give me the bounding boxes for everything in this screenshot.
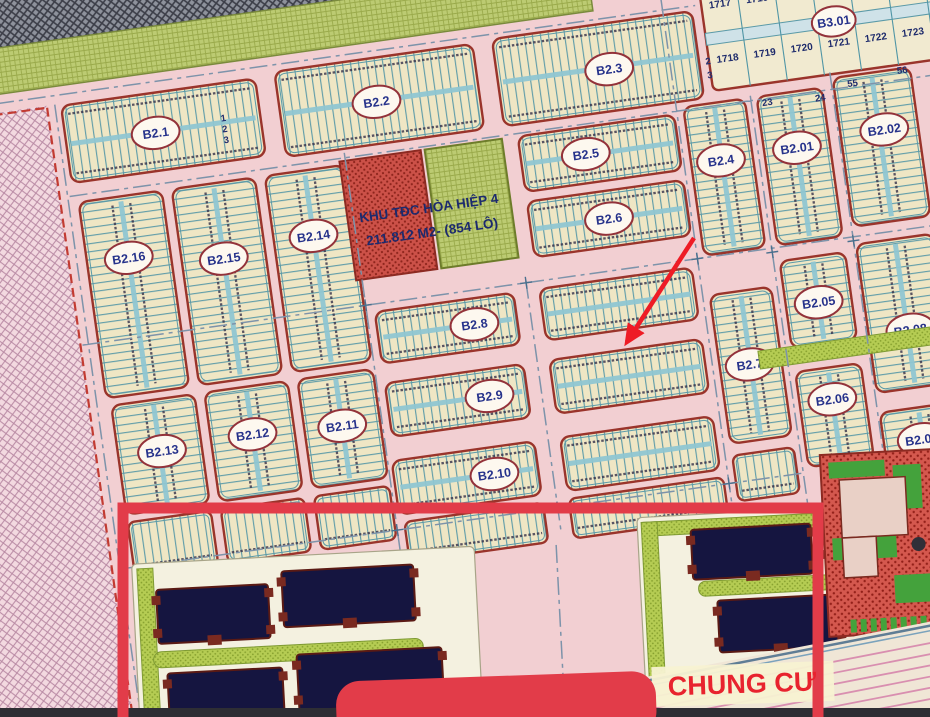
block-b2-11: B2.11 [297,369,388,489]
school-building [839,477,908,538]
green-patch [828,460,885,479]
lot-number: 56 [896,65,908,77]
block [314,486,397,550]
map-canvas: B2.1B2.2B2.3B2.16B2.15B2.14B2.5B2.6B2.4B… [0,0,930,717]
apartment-building [276,564,421,631]
school-complex [820,449,930,637]
block-b2-13: B2.13 [111,394,209,515]
block-b2-12: B2.12 [204,381,302,502]
apartment-building [151,584,276,648]
block-b2-05: B2.05 [780,252,858,348]
block-b2-06: B2.06 [795,363,874,467]
green-patch [894,573,930,603]
site-plan-map: B2.1B2.2B2.3B2.16B2.15B2.14B2.5B2.6B2.4B… [0,0,930,717]
school-building [842,536,878,578]
apartment-building [686,523,819,584]
chung-cu-label: CHUNG CƯ [667,666,817,701]
lot-number: 23 [761,97,773,109]
